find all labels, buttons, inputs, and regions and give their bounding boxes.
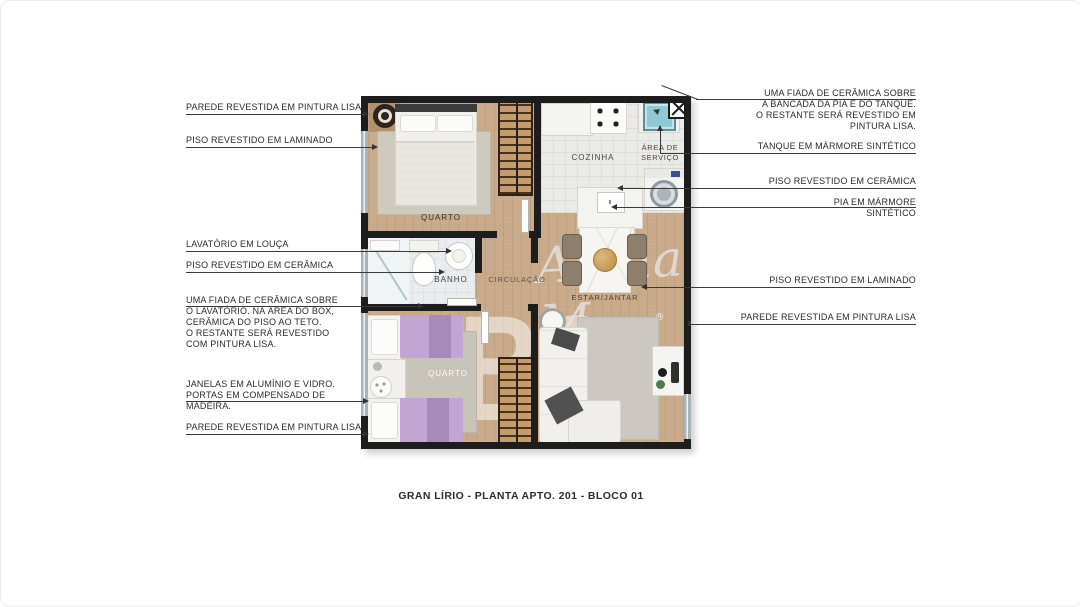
annotation-line-text: UMA FIADA DE CERÂMICA SOBRE [756, 88, 916, 99]
leader-line [647, 287, 911, 288]
leader-line [696, 99, 916, 100]
annotation-janelas-portas: JANELAS EM ALUMÍNIO E VIDRO. PORTAS EM C… [186, 379, 335, 412]
annotation-line-text: TANQUE EM MÁRMORE SINTÉTICO [758, 141, 916, 152]
leader-tick [688, 321, 691, 326]
annotation-line-text: A BANCADA DA PIA E DO TANQUE. [756, 99, 916, 110]
room-label-circulacao: CIRCULAÇÃO [477, 275, 557, 284]
dining-chair [627, 261, 647, 286]
room-label-quarto-1: QUARTO [401, 213, 481, 222]
bed-pillow [371, 402, 398, 439]
annotation-line-text: PAREDE REVESTIDA EM PINTURA LISA [186, 422, 361, 433]
leader-arrow [657, 125, 663, 131]
leader-arrow [363, 111, 369, 117]
annotation-line-text: PINTURA LISA. [756, 121, 916, 132]
leader-line [186, 401, 363, 402]
tv-icon [671, 362, 679, 383]
leader-line [617, 207, 916, 208]
annotation-piso-ceramica-cozinha: PISO REVESTIDO EM CERÂMICA [769, 176, 916, 187]
annotation-tanque-marmore: TANQUE EM MÁRMORE SINTÉTICO [758, 141, 916, 152]
annotation-line-text: PISO REVESTIDO EM LAMINADO [186, 135, 333, 146]
bed-pillow [437, 115, 473, 132]
annotation-lavatorio-louca: LAVATÓRIO EM LOUÇA [186, 239, 289, 250]
annotation-line-text: O LAVATÓRIO. NA ÁREA DO BOX, [186, 306, 338, 317]
window-living [684, 394, 691, 439]
leader-line-vertical [660, 131, 661, 153]
stove-icon [590, 101, 627, 134]
door-bedroom2 [481, 311, 489, 344]
leader-arrow [372, 144, 378, 150]
leader-arrow [641, 284, 647, 290]
leader-arrow [617, 185, 623, 191]
annotation-line-text: PORTAS EM COMPENSADO DE [186, 390, 335, 401]
annotation-parede-pintura-lisa-right: PAREDE REVESTIDA EM PINTURA LISA [741, 312, 916, 323]
annotation-line-text: O RESTANTE SERÁ REVESTIDO EM [756, 110, 916, 121]
dining-chair [562, 261, 582, 286]
leader-line [623, 188, 916, 189]
bed-pillow [400, 115, 436, 132]
annotation-fiada-ceramica-cozinha: UMA FIADA DE CERÂMICA SOBRE A BANCADA DA… [756, 88, 916, 132]
annotation-line-text: O RESTANTE SERÁ REVESTIDO [186, 328, 338, 339]
washing-machine-icon [644, 168, 685, 211]
bed-blanket [396, 141, 475, 205]
annotation-line-text: CERÂMICA DO PISO AO TETO. [186, 317, 338, 328]
annotation-piso-laminado-estar: PISO REVESTIDO EM LAMINADO [769, 275, 916, 286]
table-centerpiece [593, 248, 617, 272]
leader-arrow [439, 269, 445, 275]
annotation-line-text: MADEIRA. [186, 401, 335, 412]
floor-plan-page: TBS ® Alpha M QUARTO [0, 0, 1080, 607]
plant-icon [656, 380, 665, 389]
annotation-line-text: SINTÉTICO [834, 208, 916, 219]
leader-arrow [611, 204, 617, 210]
wall-left [361, 297, 368, 313]
door-bathroom [447, 298, 477, 306]
leader-line [186, 306, 418, 307]
room-label-banho: BANHO [421, 275, 481, 284]
leader-arrow [363, 431, 369, 437]
bed-pillow [371, 319, 398, 355]
decor-bowl [658, 368, 667, 377]
wall-left [361, 213, 368, 249]
annotation-line-text: UMA FIADA DE CERÂMICA SOBRE [186, 295, 338, 306]
wall-hall-living [531, 231, 538, 263]
ceiling-fan-hub [381, 112, 389, 120]
wardrobe [498, 101, 533, 196]
machine-drum-inner [657, 187, 671, 201]
annotation-line-text: PAREDE REVESTIDA EM PINTURA LISA [186, 102, 361, 113]
kitchen-counter [541, 103, 593, 136]
leader-arrow [363, 398, 369, 404]
wall-bedroom1-hall [368, 231, 497, 238]
machine-knob [671, 171, 680, 177]
leader-line [186, 272, 439, 273]
annotation-parede-pintura-lisa-bottom: PAREDE REVESTIDA EM PINTURA LISA [186, 422, 361, 433]
plan-caption: GRAN LÍRIO - PLANTA APTO. 201 - BLOCO 01 [331, 490, 711, 502]
wall-bath-hall [475, 238, 482, 273]
leader-line [186, 114, 363, 115]
room-label-quarto-2: QUARTO [408, 369, 488, 378]
bed-drape [427, 398, 449, 442]
bath-shelf [370, 240, 400, 251]
wardrobe [498, 357, 533, 447]
room-label-estar-jantar: ESTAR/JANTAR [559, 293, 651, 302]
annotation-line-text: COM PINTURA LISA. [186, 339, 338, 350]
bed-headboard [395, 104, 477, 112]
wall-bedroom2-living [531, 311, 538, 442]
room-label-cozinha: COZINHA [553, 153, 633, 162]
door-bedroom1 [521, 199, 529, 233]
annotation-piso-ceramica-banho: PISO REVESTIDO EM CERÂMICA [186, 260, 333, 271]
leader-line [691, 324, 916, 325]
annotation-line-text: PISO REVESTIDO EM CERÂMICA [186, 260, 333, 271]
side-table [370, 376, 392, 398]
tv-console [652, 346, 684, 396]
dining-chair [627, 234, 647, 259]
annotation-pia-marmore: PIA EM MÁRMORE SINTÉTICO [834, 197, 916, 219]
bed-drape [429, 315, 451, 358]
annotation-line-text: PISO REVESTIDO EM LAMINADO [769, 275, 916, 286]
wall-top [361, 96, 691, 103]
leader-line [186, 434, 363, 435]
leader-line [660, 153, 916, 154]
wall-right [684, 96, 691, 394]
wall-bedroom1-kitchen [534, 103, 541, 231]
wall-bedroom2-hall [528, 304, 538, 311]
decor-vase [373, 362, 382, 371]
annotation-line-text: LAVATÓRIO EM LOUÇA [186, 239, 289, 250]
annotation-piso-laminado: PISO REVESTIDO EM LAMINADO [186, 135, 333, 146]
annotation-line-text: JANELAS EM ALUMÍNIO E VIDRO. [186, 379, 335, 390]
wall-right [684, 439, 691, 449]
window-bedroom1 [361, 131, 368, 213]
annotation-parede-pintura-lisa-top: PAREDE REVESTIDA EM PINTURA LISA [186, 102, 361, 113]
wall-bottom [361, 442, 691, 449]
window-bathroom [361, 249, 368, 297]
leader-arrow [446, 248, 452, 254]
annotation-line-text: PISO REVESTIDO EM CERÂMICA [769, 176, 916, 187]
annotation-fiada-ceramica-banho: UMA FIADA DE CERÂMICA SOBRE O LAVATÓRIO.… [186, 295, 338, 350]
washbasin-bowl [452, 249, 466, 263]
dining-chair [562, 234, 582, 259]
annotation-line-text: PAREDE REVESTIDA EM PINTURA LISA [741, 312, 916, 323]
leader-line [186, 147, 372, 148]
leader-line [186, 251, 446, 252]
leader-arrow [418, 303, 424, 309]
